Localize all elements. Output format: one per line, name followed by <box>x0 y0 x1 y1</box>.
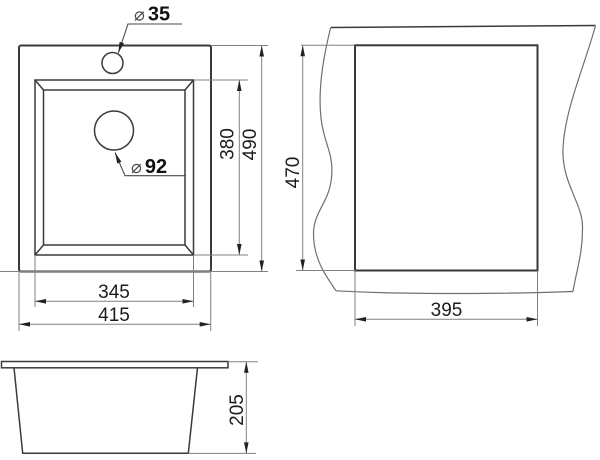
drawing-canvas: ⌀35 ⌀92 380 490 345 415 <box>0 0 600 460</box>
dim-value-basin-length: 380 <box>217 128 238 160</box>
front-view: 205 <box>2 362 259 454</box>
sink-rim-profile <box>2 362 229 368</box>
top-view: ⌀35 ⌀92 380 490 345 415 <box>0 4 268 332</box>
dim-value-basin-width: 345 <box>98 282 130 303</box>
cutout-view: 470 395 <box>283 26 596 327</box>
faucet-hole <box>102 53 123 74</box>
basin-outer-edge <box>35 80 194 255</box>
faucet-leader-line <box>118 24 182 53</box>
drain-diameter-label: ⌀92 <box>131 156 167 178</box>
dim-value-cutout-width: 395 <box>431 300 463 321</box>
basin-corner-bevel-bl <box>35 245 44 255</box>
basin-corner-bevel-tr <box>185 80 194 90</box>
dim-value-sink-height: 205 <box>227 394 248 426</box>
countertop-top-edge <box>331 26 596 28</box>
sink-technical-drawing: ⌀35 ⌀92 380 490 345 415 <box>0 0 600 460</box>
dim-value-overall-width: 415 <box>98 305 130 326</box>
sink-body-profile <box>14 368 198 454</box>
cutout-rectangle <box>355 45 538 270</box>
dim-value-cutout-length: 470 <box>283 157 304 189</box>
faucet-diameter-label: ⌀35 <box>134 4 170 26</box>
basin-corner-bevel-tl <box>35 80 44 90</box>
countertop-break-left <box>313 28 336 291</box>
dim-value-overall-length: 490 <box>240 129 261 161</box>
basin-corner-bevel-br <box>185 245 194 255</box>
drain-hole <box>95 111 134 150</box>
countertop-break-right <box>563 26 596 292</box>
